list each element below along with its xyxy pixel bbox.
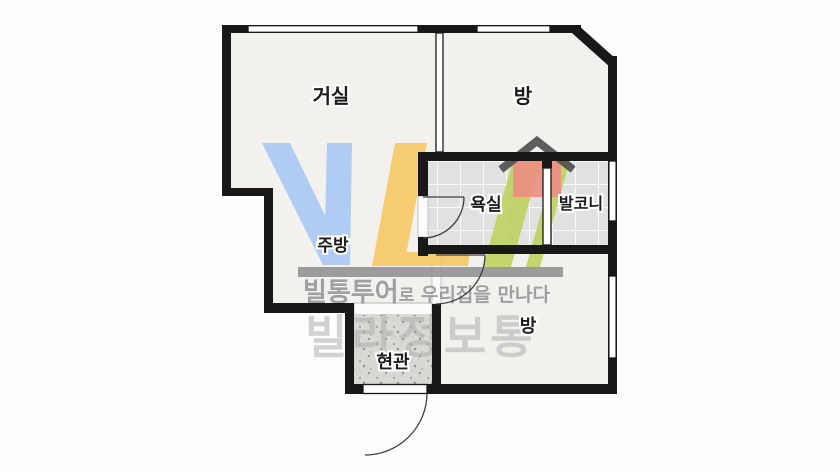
window-living-top — [248, 26, 418, 33]
window-room-bottom-right — [609, 276, 616, 358]
partition-bath-balcony — [543, 168, 551, 245]
window-balcony-right — [609, 161, 616, 221]
label-kitchen: 주방 — [317, 236, 349, 256]
floorplan-svg: 빌통투어로 우리집을 만나다 빌라정보통 거실 방 욕실 발코니 주방 방 현관 — [0, 0, 840, 472]
label-balcony: 발코니 — [559, 194, 603, 213]
label-room-bottom: 방 — [520, 316, 537, 337]
partition-living-room — [436, 33, 443, 152]
label-entrance: 현관 — [376, 352, 410, 373]
wall-room-bottom-left — [432, 304, 441, 394]
front-door — [363, 385, 427, 456]
tagline-rest: 우리집을 만나다 — [414, 284, 550, 306]
window-room-top — [477, 26, 550, 33]
wall-entrance-left — [345, 303, 354, 394]
wall-mid-horizontal — [418, 245, 617, 254]
wall-bathroom-left-upper — [418, 152, 428, 196]
wall-left — [222, 25, 231, 196]
bathroom-door-opening — [418, 196, 428, 237]
watermark-big-text: 빌라정보통 — [305, 310, 537, 364]
wall-kitchen-bottom — [264, 303, 354, 313]
label-living: 거실 — [313, 84, 350, 108]
label-room-top: 방 — [514, 84, 533, 108]
label-bathroom: 욕실 — [470, 195, 501, 215]
front-door-leaf — [363, 385, 427, 394]
wall-bathroom-top — [418, 152, 617, 161]
house-body — [513, 159, 561, 197]
tagline-particle: 로 — [399, 286, 415, 306]
logo-underline-bar — [298, 267, 563, 277]
floorplan-image: 빌통투어로 우리집을 만나다 빌라정보통 거실 방 욕실 발코니 주방 방 현관 — [0, 0, 840, 472]
partition-cap — [542, 161, 552, 168]
front-door-arc — [365, 393, 427, 455]
wall-kitchen-left — [264, 188, 273, 313]
